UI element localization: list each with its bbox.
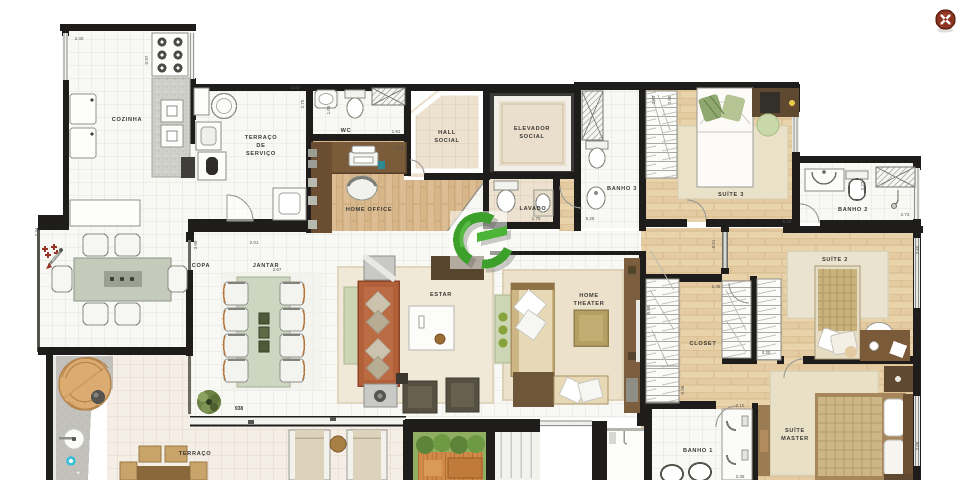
- svg-text:2.67: 2.67: [273, 267, 282, 272]
- svg-text:1.05: 1.05: [326, 105, 331, 114]
- svg-text:BANHO 1: BANHO 1: [683, 448, 713, 454]
- svg-text:3.30: 3.30: [762, 350, 771, 355]
- svg-text:HOME OFFICE: HOME OFFICE: [346, 207, 393, 213]
- svg-text:1.93: 1.93: [395, 146, 404, 151]
- svg-text:1.91: 1.91: [392, 129, 401, 134]
- svg-text:SOCIAL: SOCIAL: [519, 134, 544, 140]
- svg-text:0.90: 0.90: [646, 305, 651, 314]
- svg-text:2.45: 2.45: [712, 284, 721, 289]
- svg-text:2.35: 2.35: [736, 474, 745, 479]
- svg-text:ELEVADOR: ELEVADOR: [514, 126, 550, 132]
- svg-text:BANHO 3: BANHO 3: [607, 186, 637, 192]
- svg-text:TERRAÇO: TERRAÇO: [245, 135, 278, 141]
- svg-text:3.90: 3.90: [193, 240, 198, 249]
- svg-text:2.68: 2.68: [915, 441, 920, 450]
- svg-text:SUÍTE: SUÍTE: [785, 426, 805, 434]
- svg-text:HALL: HALL: [438, 130, 456, 136]
- svg-text:2.23: 2.23: [860, 181, 865, 190]
- svg-text:HOME: HOME: [579, 293, 599, 299]
- svg-text:ESTAR: ESTAR: [430, 292, 452, 298]
- svg-text:5.18: 5.18: [783, 219, 792, 224]
- svg-text:2.01: 2.01: [250, 240, 259, 245]
- svg-text:COPA: COPA: [192, 263, 211, 269]
- svg-text:2.73: 2.73: [901, 212, 910, 217]
- svg-text:THEATER: THEATER: [574, 301, 605, 307]
- svg-text:2.10: 2.10: [736, 403, 745, 408]
- svg-text:2.03: 2.03: [291, 85, 300, 90]
- svg-text:WC: WC: [341, 128, 352, 134]
- svg-text:2.85: 2.85: [667, 95, 672, 104]
- svg-text:LAVABO: LAVABO: [520, 206, 547, 212]
- svg-text:CLOSET: CLOSET: [690, 341, 717, 347]
- svg-text:2.83: 2.83: [651, 95, 656, 104]
- svg-text:BANHO 2: BANHO 2: [838, 207, 868, 213]
- svg-text:SOCIAL: SOCIAL: [434, 138, 459, 144]
- svg-text:0.56: 0.56: [680, 385, 685, 394]
- svg-text:2.65: 2.65: [915, 245, 920, 254]
- svg-text:1.70: 1.70: [532, 216, 541, 221]
- svg-text:5.25: 5.25: [586, 216, 595, 221]
- svg-text:SERVIÇO: SERVIÇO: [246, 151, 276, 157]
- svg-text:938: 938: [235, 406, 244, 412]
- svg-text:0.97: 0.97: [144, 55, 149, 64]
- svg-text:8.91: 8.91: [711, 239, 716, 248]
- svg-text:2.40: 2.40: [75, 36, 84, 41]
- svg-text:2.34: 2.34: [34, 227, 39, 236]
- svg-text:MASTER: MASTER: [781, 436, 809, 442]
- svg-text:SUÍTE 2: SUÍTE 2: [822, 255, 848, 263]
- svg-text:2.75: 2.75: [300, 99, 305, 108]
- svg-text:DE: DE: [256, 143, 265, 149]
- svg-text:SUÍTE 3: SUÍTE 3: [718, 190, 744, 198]
- svg-text:COZINHA: COZINHA: [112, 117, 142, 123]
- svg-text:TERRAÇO: TERRAÇO: [179, 451, 212, 457]
